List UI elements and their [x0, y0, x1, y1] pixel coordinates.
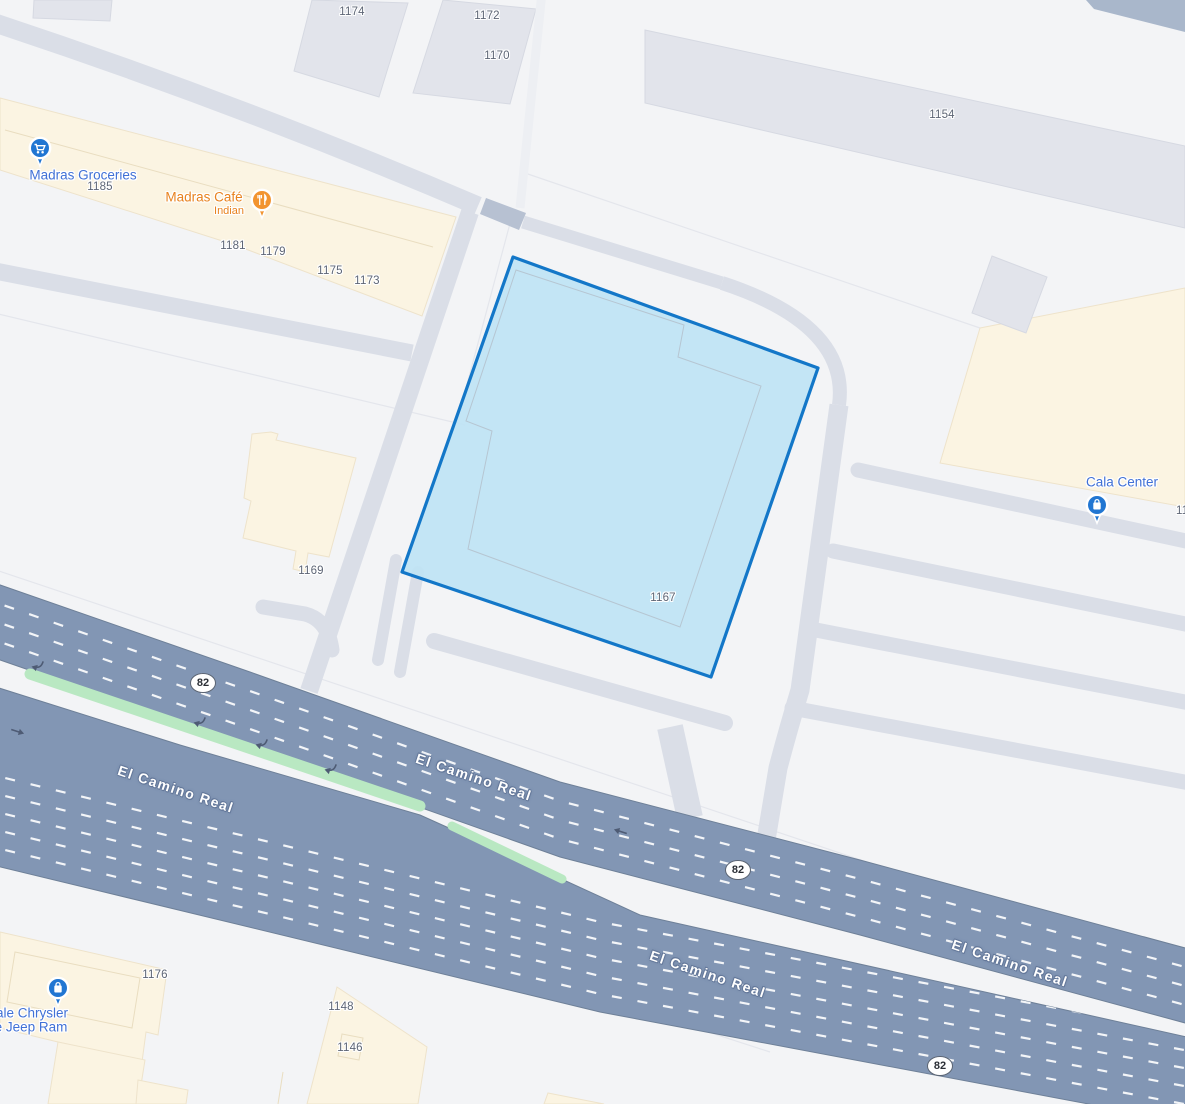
cala-center-pin[interactable] — [1084, 492, 1110, 526]
poi-label-cala-center[interactable]: Cala Center — [1086, 475, 1158, 490]
route-82-shield: 82 — [190, 673, 216, 693]
route-82-shield: 82 — [725, 860, 751, 880]
address-label: 1148 — [328, 1001, 354, 1013]
address-label: 1169 — [298, 565, 324, 577]
address-label: 1174 — [339, 6, 365, 18]
address-label: 1146 — [337, 1042, 363, 1054]
address-label: 1175 — [317, 265, 343, 277]
parcel-number-label: 1167 — [650, 592, 676, 604]
address-label: 1172 — [474, 10, 500, 22]
route-82-shield: 82 — [927, 1056, 953, 1076]
poi-label-dealer-line2[interactable]: e Jeep Ram — [0, 1020, 67, 1035]
address-label: 1173 — [354, 275, 380, 287]
address-label: 1176 — [142, 969, 168, 981]
address-label: 1154 — [929, 109, 955, 121]
poi-subtitle-cuisine: Indian — [214, 205, 244, 217]
map-canvas[interactable]: 1174 1172 1170 1154 1185 1181 1179 1175 … — [0, 0, 1185, 1104]
poi-label-madras-cafe[interactable]: Madras Café — [165, 190, 242, 205]
address-label: 1185 — [87, 181, 113, 193]
address-label: 1170 — [484, 50, 510, 62]
address-label: 1181 — [220, 240, 246, 252]
madras-cafe-pin[interactable] — [249, 187, 275, 221]
madras-groceries-pin[interactable] — [27, 135, 53, 169]
address-label-clipped: 11 — [1176, 505, 1185, 517]
map-base-layer — [0, 0, 1185, 1104]
address-label: 1179 — [260, 246, 286, 258]
dealer-pin[interactable] — [45, 975, 71, 1009]
poi-label-madras-groceries[interactable]: Madras Groceries — [29, 168, 136, 183]
